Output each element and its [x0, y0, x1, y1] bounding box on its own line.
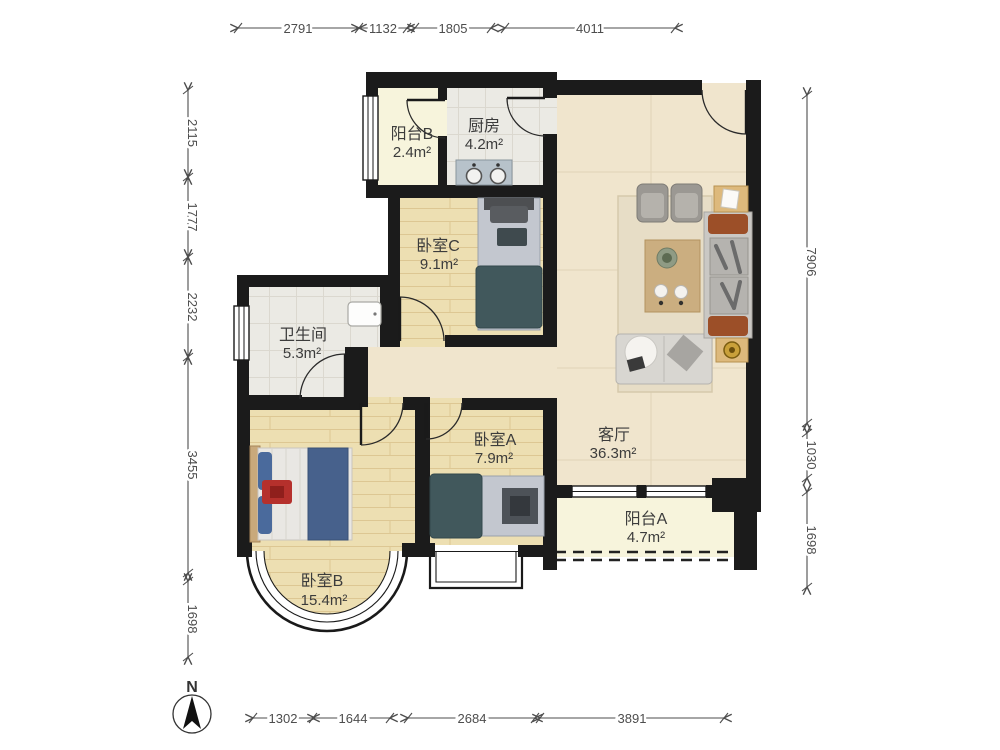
bed-bedroom-a	[430, 474, 544, 538]
wall-top-living	[548, 80, 702, 95]
wall-bathroom-top	[237, 275, 392, 287]
room-name: 卫生间	[279, 326, 327, 344]
bay-window-strip-floor	[252, 540, 404, 552]
wall-bedroom-a-right	[543, 398, 557, 570]
side-table-top	[714, 186, 748, 212]
bathroom-window	[234, 306, 249, 360]
dim-left-4: 3455	[185, 451, 200, 480]
room-area: 7.9m²	[475, 450, 513, 467]
wall-kitchen-right-stub	[543, 88, 557, 98]
dim-bottom-3: 2684	[458, 711, 487, 726]
room-name: 阳台A	[625, 510, 668, 528]
floor-plan-canvas: 阳台B 2.4m² 厨房 4.2m² 卧室C 9.1m² 卫生间 5.3m² 卧…	[0, 0, 1000, 750]
bow-bay-window	[247, 551, 407, 631]
room-name: 卧室C	[416, 237, 460, 255]
wall-top-kitchen	[366, 72, 557, 88]
wall-balcony-b-bottom	[366, 185, 447, 198]
wall-bedroom-b-top	[237, 397, 360, 410]
wall-living-bottom-post-right	[706, 485, 714, 498]
dim-left-2: 1777	[185, 203, 200, 232]
sofa-horizontal	[616, 334, 712, 384]
room-area: 9.1m²	[420, 256, 458, 273]
dim-top-4: 4011	[576, 21, 604, 36]
balcony-b-window	[363, 96, 378, 180]
wall-bathroom-right	[380, 275, 392, 347]
dim-left-3: 2232	[185, 293, 200, 322]
north-label: N	[186, 679, 198, 696]
wall-bay-stub-left	[237, 541, 252, 557]
wall-bedroom-c-bottom	[445, 335, 557, 347]
dim-top-3: 1805	[439, 21, 468, 36]
dim-right-3: 1698	[804, 526, 819, 555]
bedroom-a-door-threshold	[425, 398, 462, 410]
hallway-floor	[368, 347, 557, 398]
dim-ruler-bottom	[249, 713, 728, 723]
wall-kitchen-bottom	[438, 185, 557, 198]
room-name: 阳台B	[391, 125, 434, 143]
wall-living-bottom-post-left	[557, 485, 572, 498]
room-name: 厨房	[468, 117, 500, 135]
dining-table	[645, 240, 700, 312]
dim-bottom-1: 1302	[269, 711, 298, 726]
north-needle-icon	[183, 696, 201, 729]
north-compass: N	[173, 679, 211, 733]
entry-threshold	[702, 83, 746, 96]
dim-bottom-2: 1644	[339, 711, 368, 726]
dim-right-2: 1030	[804, 441, 819, 470]
room-name: 卧室B	[301, 572, 344, 590]
wall-bay-stub-right	[402, 543, 435, 557]
dim-top-1: 2791	[284, 21, 313, 36]
dim-ruler-left	[183, 86, 193, 661]
wall-bedroom-b-left	[237, 397, 250, 545]
wall-divider-balconyb-kitchen-top	[438, 88, 447, 100]
wall-kitchen-bedroomc-right	[543, 134, 557, 347]
washer	[348, 302, 381, 326]
dim-left-5: 1698	[185, 605, 200, 634]
room-area: 15.4m²	[301, 592, 348, 609]
dim-bottom-4: 3891	[618, 711, 647, 726]
wall-bedroom-a-bottom	[518, 545, 557, 557]
side-table-bottom	[716, 338, 748, 362]
wall-bedroom-a-b-divider	[415, 397, 430, 557]
room-area: 36.3m²	[590, 445, 637, 462]
living-balcony-slider-right	[646, 486, 706, 497]
dim-left-1: 2115	[185, 119, 200, 147]
bedroom-c-door-threshold	[400, 335, 445, 347]
dim-right-1: 7906	[804, 248, 819, 277]
kitchen-door-threshold	[543, 98, 557, 136]
dim-top-2: 1132	[369, 21, 397, 36]
room-area: 5.3m²	[283, 345, 321, 362]
room-name: 卧室A	[474, 431, 517, 449]
room-area: 4.2m²	[465, 136, 503, 153]
rect-bay-window	[430, 551, 522, 588]
balcony-b-door-threshold	[438, 100, 447, 136]
room-area: 2.4m²	[393, 144, 431, 161]
living-balcony-slider-left	[572, 486, 637, 497]
room-area: 4.7m²	[627, 529, 665, 546]
wall-bedroom-a-top	[462, 398, 557, 410]
bed-bedroom-c	[476, 198, 542, 330]
bed-bedroom-b	[250, 446, 352, 542]
stove	[456, 160, 512, 185]
dim-ruler-right	[802, 91, 812, 591]
room-name: 客厅	[598, 426, 630, 444]
wall-balcony-a-right	[734, 505, 757, 570]
wall-living-bottom-post-mid	[637, 485, 646, 498]
floor-plan-page: 阳台B 2.4m² 厨房 4.2m² 卧室C 9.1m² 卫生间 5.3m² 卧…	[0, 0, 1000, 750]
sofa-vertical	[704, 212, 752, 338]
